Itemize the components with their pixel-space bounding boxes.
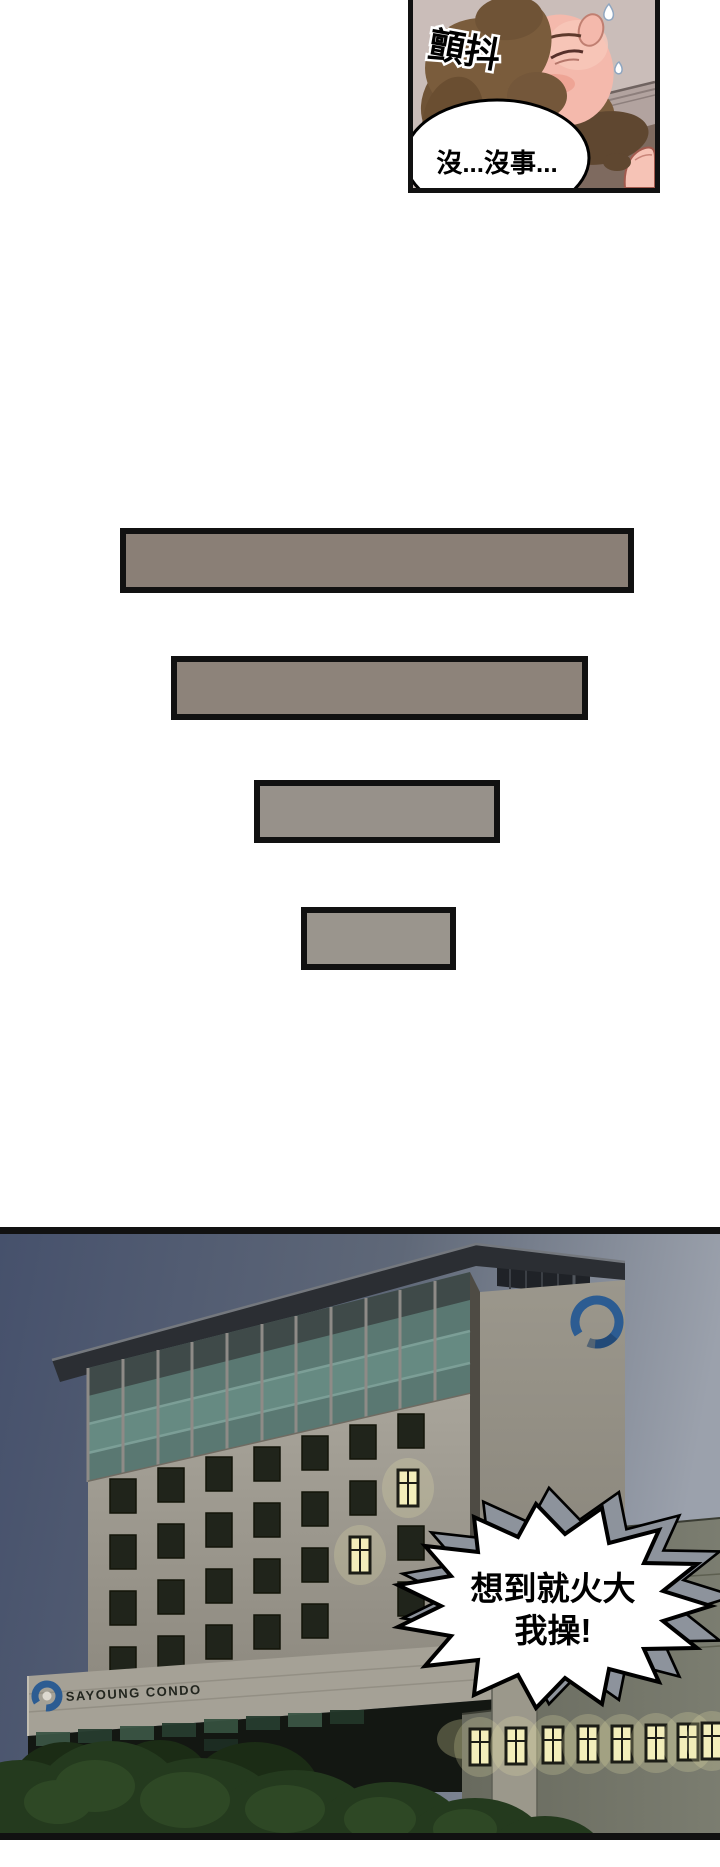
shout-bubble-line-2: 我操! <box>515 1612 592 1649</box>
building-illustration: SAYOUNG CONDO <box>0 1234 720 1833</box>
panel-trembling-character: 顫抖 沒...沒事... <box>408 0 660 193</box>
panel-condo-building: SAYOUNG CONDO <box>0 1227 720 1840</box>
speech-bubble-text: 沒...沒事... <box>436 148 557 178</box>
transition-bar-1 <box>120 528 634 593</box>
transition-bar-4 <box>301 907 456 970</box>
transition-bar-2 <box>171 656 588 720</box>
transition-bar-3 <box>254 780 500 843</box>
character-illustration: 顫抖 沒...沒事... <box>413 0 655 188</box>
comic-page: 顫抖 沒...沒事... <box>0 0 720 1867</box>
shout-bubble-line-1: 想到就火大 <box>471 1570 636 1607</box>
